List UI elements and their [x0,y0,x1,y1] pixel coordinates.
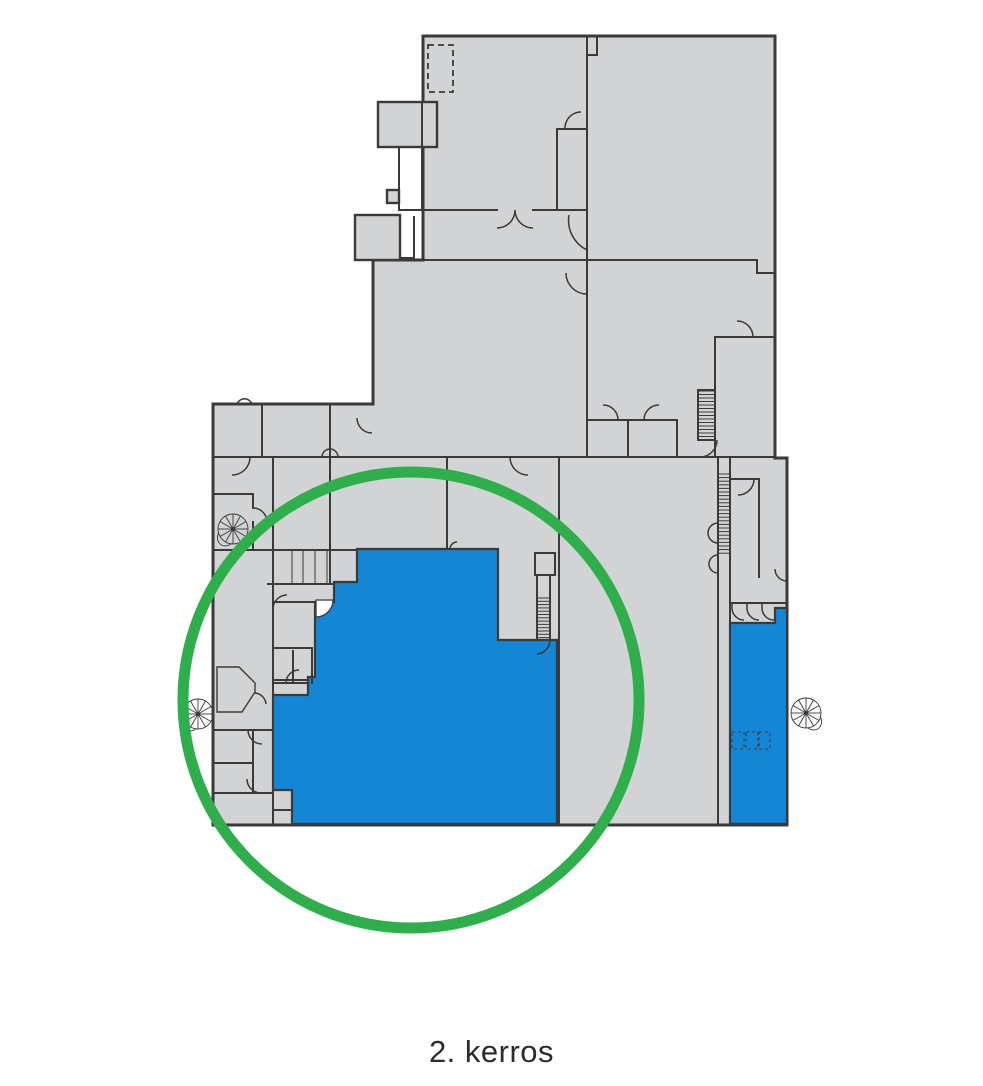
protruding-room-upper [378,102,437,147]
courtyard-void [399,147,422,210]
floor-plan-page: 2. kerros [0,0,983,1086]
floor-caption: 2. kerros [0,1034,983,1070]
spiral-staircase-icon [791,698,822,730]
floor-plan-image [0,0,983,1086]
protruding-box-small [387,190,399,203]
protruding-room-lower [355,215,400,260]
highlighted-area-right-strip [730,608,787,824]
